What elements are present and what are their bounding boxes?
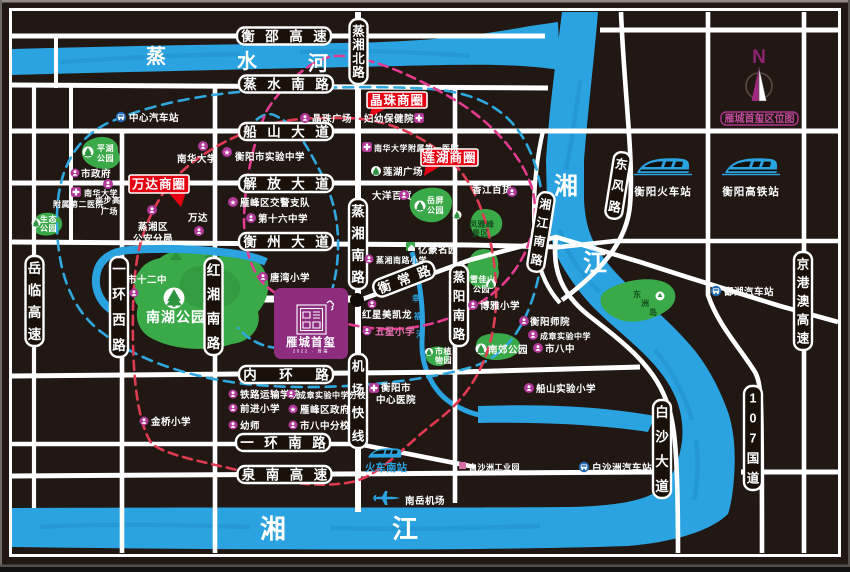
svg-text:蒸湘区: 蒸湘区 bbox=[138, 221, 168, 233]
svg-text:泉: 泉 bbox=[242, 466, 256, 482]
svg-text:北: 北 bbox=[352, 51, 365, 66]
svg-text:南华大学: 南华大学 bbox=[177, 153, 217, 165]
svg-text:大: 大 bbox=[291, 175, 305, 191]
svg-text:香江百货: 香江百货 bbox=[471, 184, 512, 196]
svg-text:晶珠商圈: 晶珠商圈 bbox=[370, 93, 424, 108]
svg-text:公园: 公园 bbox=[97, 154, 114, 163]
svg-text:雁城首玺区位图: 雁城首玺区位图 bbox=[725, 112, 795, 125]
svg-text:妇幼保健院: 妇幼保健院 bbox=[363, 113, 414, 125]
svg-text:南华大学附属第一医院: 南华大学附属第一医院 bbox=[374, 143, 459, 153]
svg-text:火车南站: 火车南站 bbox=[365, 461, 407, 474]
svg-text:内: 内 bbox=[243, 366, 257, 382]
svg-text:大: 大 bbox=[655, 453, 669, 469]
svg-text:大: 大 bbox=[291, 233, 305, 249]
svg-text:水: 水 bbox=[237, 50, 258, 73]
svg-text:红: 红 bbox=[207, 262, 221, 278]
svg-text:公安分局: 公安分局 bbox=[133, 233, 173, 245]
svg-text:市八中: 市八中 bbox=[545, 343, 575, 355]
svg-text:河: 河 bbox=[416, 329, 425, 339]
svg-text:凤雅峰: 凤雅峰 bbox=[469, 219, 495, 229]
svg-text:路: 路 bbox=[453, 327, 466, 342]
svg-text:雁峰区交警支队: 雁峰区交警支队 bbox=[240, 197, 310, 209]
svg-text:湘: 湘 bbox=[207, 286, 221, 302]
svg-text:阳: 阳 bbox=[453, 289, 466, 304]
svg-text:蒸: 蒸 bbox=[243, 76, 257, 92]
svg-text:机: 机 bbox=[352, 359, 365, 374]
svg-text:物园: 物园 bbox=[435, 355, 452, 365]
svg-text:湘: 湘 bbox=[538, 196, 552, 213]
svg-text:雁城首玺: 雁城首玺 bbox=[286, 335, 336, 349]
svg-text:衡: 衡 bbox=[241, 28, 255, 44]
svg-text:★: ★ bbox=[290, 405, 297, 414]
svg-text:蒸: 蒸 bbox=[352, 24, 365, 39]
svg-text:路: 路 bbox=[312, 434, 326, 450]
svg-text:★: ★ bbox=[230, 198, 237, 207]
svg-text:步步高: 步步高 bbox=[95, 195, 121, 205]
svg-text:沙: 沙 bbox=[655, 430, 669, 445]
svg-text:前进小学: 前进小学 bbox=[240, 403, 280, 415]
svg-text:路: 路 bbox=[315, 76, 329, 92]
svg-text:江: 江 bbox=[535, 214, 549, 231]
svg-text:博雅小学: 博雅小学 bbox=[480, 300, 520, 312]
svg-text:国: 国 bbox=[747, 452, 760, 466]
svg-text:衡阳火车站: 衡阳火车站 bbox=[634, 185, 692, 198]
svg-text:西: 西 bbox=[112, 313, 126, 328]
svg-text:速: 速 bbox=[797, 331, 810, 346]
svg-text:7: 7 bbox=[750, 432, 757, 446]
svg-text:市政府: 市政府 bbox=[81, 168, 111, 180]
svg-text:白沙洲汽车站: 白沙洲汽车站 bbox=[592, 462, 652, 474]
svg-text:道: 道 bbox=[315, 233, 329, 249]
svg-text:道: 道 bbox=[747, 471, 760, 486]
svg-text:道: 道 bbox=[655, 478, 669, 494]
svg-text:蒸湘南路小学: 蒸湘南路小学 bbox=[376, 255, 427, 265]
svg-text:路: 路 bbox=[351, 269, 365, 285]
svg-text:南岳机场: 南岳机场 bbox=[405, 495, 445, 507]
svg-text:景区: 景区 bbox=[472, 228, 489, 238]
svg-text:一: 一 bbox=[240, 435, 254, 450]
svg-text:南: 南 bbox=[266, 466, 280, 482]
svg-text:高: 高 bbox=[28, 304, 42, 320]
svg-text:解: 解 bbox=[243, 175, 257, 191]
svg-text:速: 速 bbox=[28, 326, 42, 342]
svg-text:湘: 湘 bbox=[260, 514, 286, 544]
svg-text:速: 速 bbox=[313, 28, 327, 44]
svg-text:莲湖广场: 莲湖广场 bbox=[383, 166, 423, 178]
svg-text:市十二中: 市十二中 bbox=[127, 274, 167, 286]
svg-text:平湖: 平湖 bbox=[97, 143, 114, 153]
svg-text:州: 州 bbox=[266, 234, 281, 249]
svg-text:邵: 邵 bbox=[264, 29, 279, 44]
svg-text:生态: 生态 bbox=[40, 214, 57, 224]
svg-text:路: 路 bbox=[207, 335, 221, 351]
svg-text:第十六中学: 第十六中学 bbox=[258, 213, 308, 225]
svg-text:临: 临 bbox=[28, 282, 42, 298]
svg-text:公园: 公园 bbox=[40, 224, 57, 233]
svg-text:晶珠广场: 晶珠广场 bbox=[312, 113, 352, 125]
svg-text:湘: 湘 bbox=[554, 173, 578, 200]
svg-text:南: 南 bbox=[207, 311, 221, 327]
svg-text:岳屏: 岳屏 bbox=[427, 195, 444, 205]
svg-text:1: 1 bbox=[750, 392, 757, 406]
svg-text:白沙洲工业园: 白沙洲工业园 bbox=[469, 462, 520, 472]
svg-text:0: 0 bbox=[750, 412, 757, 426]
svg-text:港: 港 bbox=[797, 275, 810, 290]
svg-text:成章实验中学: 成章实验中学 bbox=[540, 331, 591, 341]
svg-text:★: ★ bbox=[224, 148, 231, 157]
svg-text:江: 江 bbox=[392, 514, 418, 544]
svg-text:南: 南 bbox=[291, 76, 305, 92]
svg-text:鄱湖汽车站: 鄱湖汽车站 bbox=[723, 286, 774, 298]
svg-text:船: 船 bbox=[243, 123, 257, 139]
svg-text:京: 京 bbox=[797, 257, 810, 272]
svg-text:公园: 公园 bbox=[427, 206, 444, 215]
svg-text:市植: 市植 bbox=[435, 346, 452, 356]
svg-text:南: 南 bbox=[351, 247, 365, 263]
svg-text:一: 一 bbox=[112, 262, 126, 277]
svg-text:南: 南 bbox=[453, 308, 466, 323]
svg-text:万达: 万达 bbox=[187, 212, 208, 224]
svg-text:南: 南 bbox=[532, 233, 546, 250]
svg-text:幼师: 幼师 bbox=[240, 420, 260, 432]
svg-text:路: 路 bbox=[112, 337, 126, 353]
svg-text:放: 放 bbox=[266, 175, 281, 191]
svg-text:蒸: 蒸 bbox=[146, 44, 166, 68]
svg-text:市八中分校: 市八中分校 bbox=[300, 420, 350, 432]
svg-text:N: N bbox=[752, 47, 766, 68]
svg-text:路: 路 bbox=[352, 65, 365, 80]
svg-text:东: 东 bbox=[633, 289, 642, 299]
svg-text:2022 · 首玺: 2022 · 首玺 bbox=[293, 348, 330, 355]
svg-text:白: 白 bbox=[655, 404, 669, 420]
svg-text:五星小学: 五星小学 bbox=[375, 326, 415, 338]
svg-text:红星美凯龙: 红星美凯龙 bbox=[362, 309, 412, 321]
svg-text:江: 江 bbox=[583, 250, 607, 277]
svg-text:快: 快 bbox=[352, 405, 365, 420]
svg-text:大: 大 bbox=[291, 123, 305, 139]
svg-text:蒸: 蒸 bbox=[351, 203, 365, 219]
svg-text:线: 线 bbox=[352, 429, 365, 444]
svg-text:衡阳市: 衡阳市 bbox=[381, 382, 411, 394]
svg-text:环: 环 bbox=[112, 287, 126, 302]
svg-text:高: 高 bbox=[289, 28, 303, 44]
svg-text:中心医院: 中心医院 bbox=[376, 394, 416, 406]
svg-text:高: 高 bbox=[290, 466, 304, 482]
svg-text:环: 环 bbox=[279, 367, 293, 382]
svg-text:水: 水 bbox=[267, 76, 281, 92]
svg-text:蒸: 蒸 bbox=[453, 270, 466, 285]
svg-text:高: 高 bbox=[797, 312, 810, 327]
svg-text:成章实验中学分校: 成章实验中学分校 bbox=[298, 390, 366, 400]
svg-text:环: 环 bbox=[264, 435, 278, 450]
svg-text:速: 速 bbox=[314, 466, 328, 482]
svg-text:福: 福 bbox=[413, 311, 423, 321]
svg-text:岳: 岳 bbox=[28, 260, 42, 276]
svg-text:万达商圈: 万达商圈 bbox=[131, 177, 186, 192]
svg-text:湘: 湘 bbox=[351, 225, 365, 241]
svg-text:唐湾小学: 唐湾小学 bbox=[270, 272, 310, 284]
svg-text:衡阳市实验中学: 衡阳市实验中学 bbox=[235, 151, 305, 163]
svg-text:湘: 湘 bbox=[352, 37, 365, 52]
svg-text:澳: 澳 bbox=[797, 294, 810, 309]
svg-text:广场: 广场 bbox=[101, 206, 118, 216]
svg-text:衡阳高铁站: 衡阳高铁站 bbox=[722, 185, 780, 198]
svg-text:船山实验小学: 船山实验小学 bbox=[536, 383, 596, 395]
svg-text:岛: 岛 bbox=[649, 307, 658, 317]
svg-text:衡: 衡 bbox=[243, 233, 257, 249]
svg-text:幸: 幸 bbox=[412, 293, 421, 303]
svg-text:路: 路 bbox=[315, 366, 329, 382]
svg-text:河: 河 bbox=[308, 52, 328, 75]
svg-text:衡阳师院: 衡阳师院 bbox=[530, 316, 570, 328]
svg-text:洲: 洲 bbox=[641, 299, 650, 308]
svg-text:道: 道 bbox=[315, 175, 329, 191]
svg-text:山: 山 bbox=[267, 124, 281, 139]
svg-text:南: 南 bbox=[288, 434, 302, 450]
svg-text:南湖公园: 南湖公园 bbox=[146, 309, 206, 325]
svg-text:雁峰区政府: 雁峰区政府 bbox=[300, 404, 350, 416]
svg-text:南郊公园: 南郊公园 bbox=[488, 344, 528, 356]
svg-text:道: 道 bbox=[315, 123, 329, 139]
svg-text:亿豪名园: 亿豪名园 bbox=[418, 244, 458, 256]
svg-text:金桥小学: 金桥小学 bbox=[150, 416, 191, 428]
svg-text:中心汽车站: 中心汽车站 bbox=[129, 112, 179, 124]
